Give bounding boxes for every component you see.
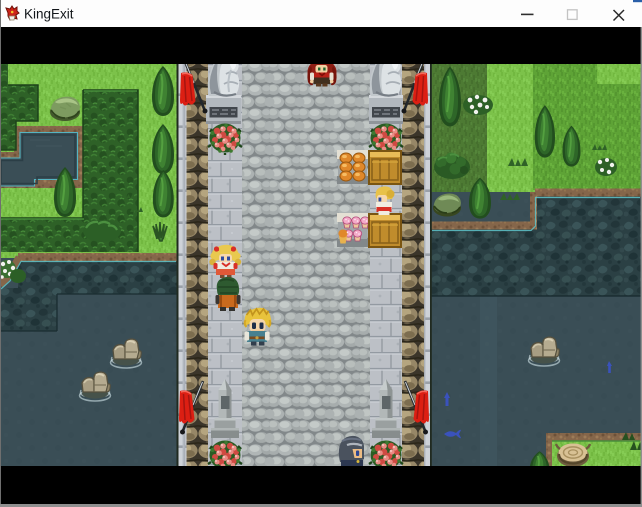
svg-text:KingExit: KingExit (24, 7, 74, 22)
